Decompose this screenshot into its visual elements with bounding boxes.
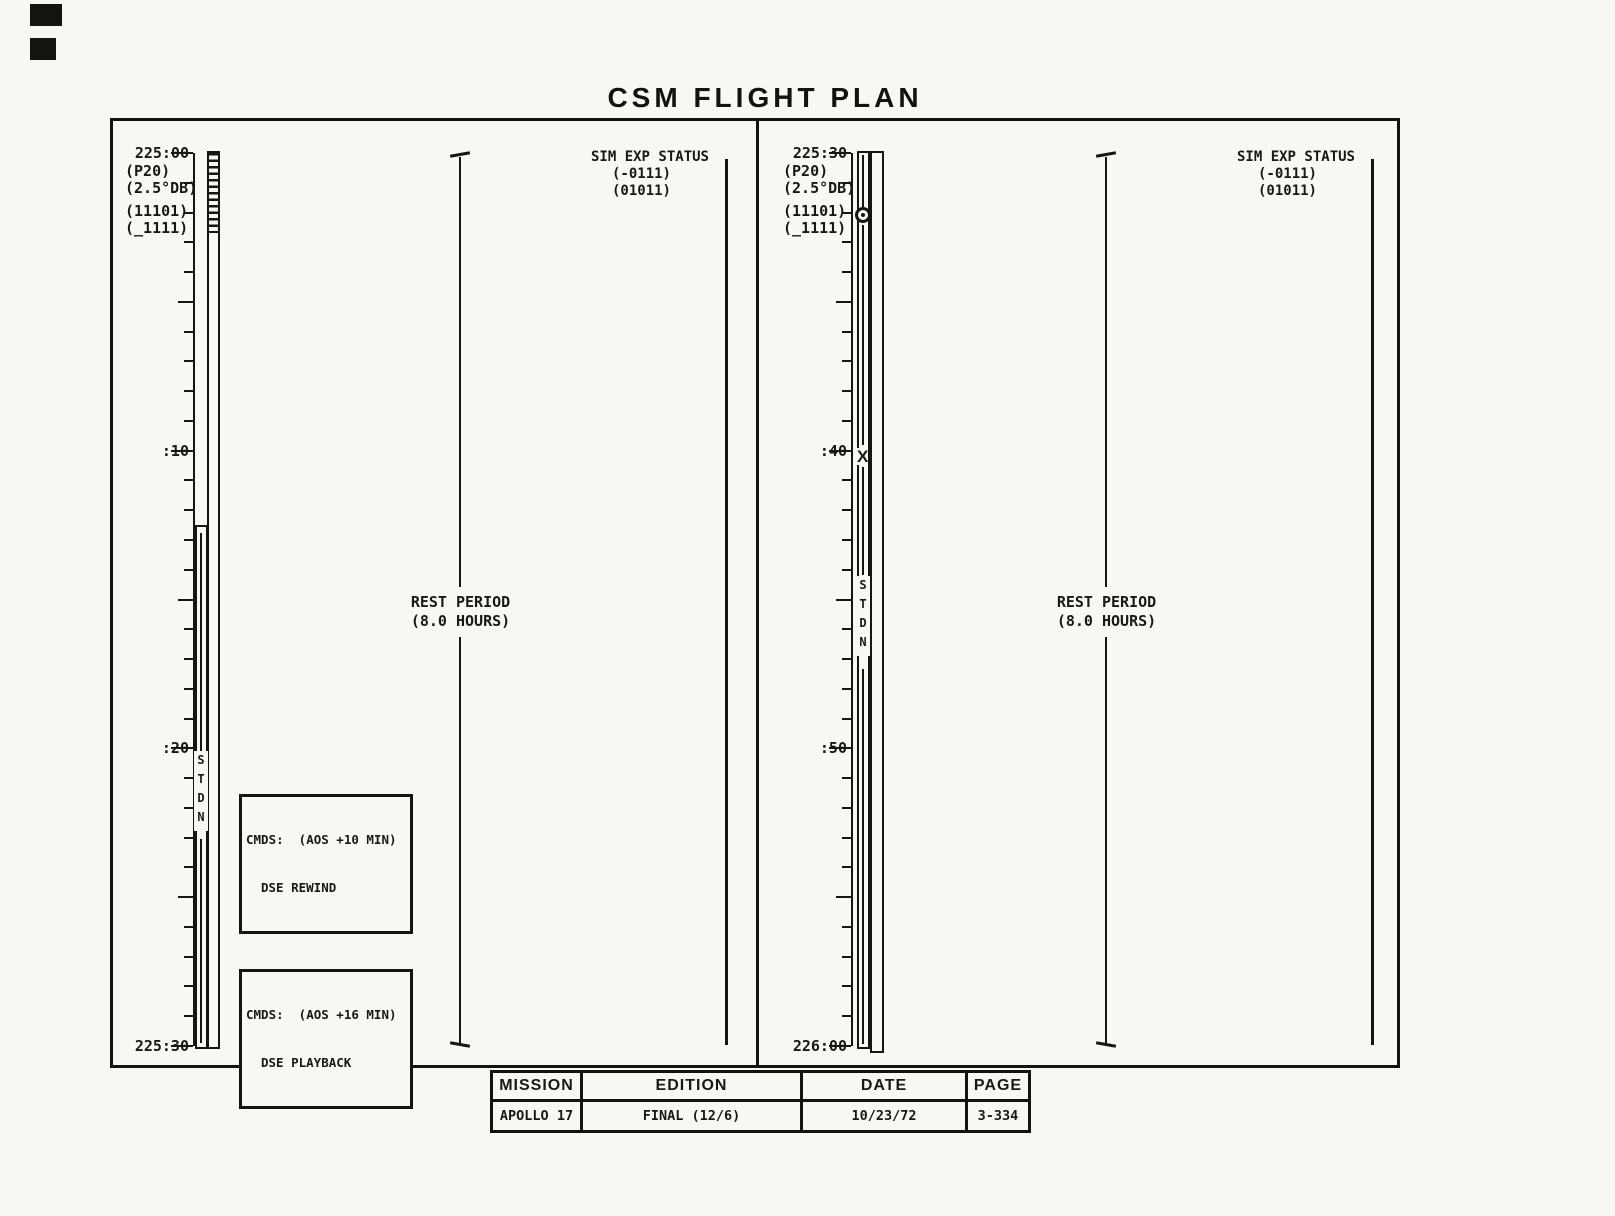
time-tick bbox=[184, 628, 193, 630]
time-tick bbox=[842, 985, 851, 987]
time-tick bbox=[842, 241, 851, 243]
rest-period-title: REST PERIOD bbox=[363, 593, 558, 612]
cmds-line: CMDS: (AOS +10 MIN) bbox=[246, 832, 406, 848]
mission-data-table: MISSION EDITION DATE PAGE APOLLO 17 FINA… bbox=[490, 1070, 1031, 1133]
value-mission: APOLLO 17 bbox=[492, 1101, 582, 1132]
time-tick bbox=[842, 926, 851, 928]
time-tick bbox=[184, 956, 193, 958]
annotation-block: (P20) (2.5°DB) (11101) (_1111) bbox=[783, 163, 855, 237]
scan-artifact bbox=[30, 38, 56, 60]
coverage-centerline bbox=[862, 225, 864, 445]
time-tick bbox=[184, 1015, 193, 1017]
scan-artifact bbox=[30, 4, 62, 26]
activity-bar bbox=[207, 151, 220, 1049]
time-tick bbox=[836, 599, 851, 601]
time-tick bbox=[184, 390, 193, 392]
sim-exp-status-value1: (-0111) bbox=[1174, 166, 1359, 183]
time-tick bbox=[184, 718, 193, 720]
annotation-deadband: (2.5°DB) bbox=[783, 180, 855, 197]
hatched-segment bbox=[209, 153, 218, 233]
cmds-line: CMDS: (AOS +16 MIN) bbox=[246, 1007, 406, 1023]
rest-period-label: REST PERIOD (8.0 HOURS) bbox=[1009, 587, 1204, 637]
time-label-mid2: :50 bbox=[771, 739, 847, 757]
sim-exp-status-value2: (01011) bbox=[1174, 183, 1359, 200]
circle-dot-marker bbox=[855, 207, 871, 223]
annotation-p20: (P20) bbox=[783, 163, 855, 180]
time-tick bbox=[184, 241, 193, 243]
time-tick bbox=[184, 539, 193, 541]
time-tick bbox=[836, 896, 851, 898]
time-tick bbox=[842, 956, 851, 958]
sim-exp-status-line bbox=[725, 159, 728, 1045]
time-tick bbox=[178, 896, 193, 898]
time-tick bbox=[842, 688, 851, 690]
flight-plan-box: 225:00 :10 :20 225:30 (P20) (2.5°DB) (11… bbox=[110, 118, 1400, 1068]
cmds-action: DSE REWIND bbox=[246, 880, 406, 896]
activity-bar bbox=[870, 151, 884, 1053]
sim-exp-status-block: SIM EXP STATUS (-0111) (01011) bbox=[1174, 149, 1359, 200]
cmds-action: DSE PLAYBACK bbox=[246, 1055, 406, 1071]
sim-exp-status-title: SIM EXP STATUS bbox=[1174, 149, 1359, 166]
time-tick bbox=[184, 658, 193, 660]
annotation-block: (P20) (2.5°DB) (11101) (_1111) bbox=[125, 163, 197, 237]
annotation-status-1: (11101) bbox=[783, 203, 855, 220]
time-label-start: 225:30 bbox=[771, 144, 847, 162]
time-tick bbox=[842, 360, 851, 362]
rest-period-duration: (8.0 HOURS) bbox=[363, 612, 558, 631]
annotation-status-2: (_1111) bbox=[125, 220, 197, 237]
time-tick bbox=[184, 837, 193, 839]
time-tick bbox=[842, 420, 851, 422]
rest-period-duration: (8.0 HOURS) bbox=[1009, 612, 1204, 631]
time-label-end: 225:30 bbox=[113, 1037, 189, 1055]
time-tick bbox=[842, 331, 851, 333]
header-edition: EDITION bbox=[582, 1072, 802, 1101]
time-tick bbox=[842, 777, 851, 779]
rest-period-label: REST PERIOD (8.0 HOURS) bbox=[363, 587, 558, 637]
timeline-panel-left: 225:00 :10 :20 225:30 (P20) (2.5°DB) (11… bbox=[113, 121, 756, 1065]
time-tick bbox=[842, 628, 851, 630]
time-tick bbox=[184, 271, 193, 273]
time-tick bbox=[178, 599, 193, 601]
value-date: 10/23/72 bbox=[802, 1101, 967, 1132]
time-tick bbox=[184, 569, 193, 571]
time-tick bbox=[184, 509, 193, 511]
time-tick bbox=[184, 777, 193, 779]
time-tick bbox=[184, 331, 193, 333]
coverage-centerline bbox=[200, 533, 202, 751]
value-page: 3-334 bbox=[967, 1101, 1030, 1132]
time-tick bbox=[842, 837, 851, 839]
value-edition: FINAL (12/6) bbox=[582, 1101, 802, 1132]
annotation-status-2: (_1111) bbox=[783, 220, 855, 237]
annotation-deadband: (2.5°DB) bbox=[125, 180, 197, 197]
sim-exp-status-value1: (-0111) bbox=[528, 166, 713, 183]
x-marker: X bbox=[857, 448, 868, 465]
time-tick bbox=[842, 539, 851, 541]
time-tick bbox=[842, 866, 851, 868]
time-tick bbox=[842, 658, 851, 660]
table-value-row: APOLLO 17 FINAL (12/6) 10/23/72 3-334 bbox=[492, 1101, 1030, 1132]
time-tick bbox=[184, 420, 193, 422]
timeline-panel-right: 225:30 :40 :50 226:00 (P20) (2.5°DB) (11… bbox=[759, 121, 1402, 1065]
coverage-centerline bbox=[862, 155, 864, 207]
time-tick bbox=[842, 569, 851, 571]
cmds-box-dse-playback: CMDS: (AOS +16 MIN) DSE PLAYBACK bbox=[239, 969, 413, 1109]
time-tick bbox=[836, 301, 851, 303]
table-header-row: MISSION EDITION DATE PAGE bbox=[492, 1072, 1030, 1101]
stdn-label: STDN bbox=[194, 751, 208, 831]
time-label-mid2: :20 bbox=[113, 739, 189, 757]
coverage-centerline bbox=[862, 467, 864, 575]
annotation-status-1: (11101) bbox=[125, 203, 197, 220]
time-tick bbox=[184, 866, 193, 868]
header-mission: MISSION bbox=[492, 1072, 582, 1101]
time-tick bbox=[184, 807, 193, 809]
time-tick bbox=[842, 271, 851, 273]
time-tick bbox=[184, 688, 193, 690]
time-tick bbox=[842, 807, 851, 809]
page-title: CSM FLIGHT PLAN bbox=[545, 82, 985, 114]
cmds-box-dse-rewind: CMDS: (AOS +10 MIN) DSE REWIND bbox=[239, 794, 413, 934]
time-tick bbox=[184, 479, 193, 481]
time-tick bbox=[184, 926, 193, 928]
time-tick bbox=[184, 985, 193, 987]
time-label-mid1: :10 bbox=[113, 442, 189, 460]
sim-exp-status-line bbox=[1371, 159, 1374, 1045]
time-tick bbox=[842, 509, 851, 511]
time-label-mid1: :40 bbox=[771, 442, 847, 460]
annotation-p20: (P20) bbox=[125, 163, 197, 180]
coverage-centerline bbox=[200, 839, 202, 1043]
sim-exp-status-title: SIM EXP STATUS bbox=[528, 149, 713, 166]
sim-exp-status-value2: (01011) bbox=[528, 183, 713, 200]
time-tick bbox=[178, 301, 193, 303]
time-tick bbox=[842, 718, 851, 720]
time-tick bbox=[842, 1015, 851, 1017]
stdn-label: STDN bbox=[856, 576, 870, 656]
time-tick bbox=[842, 479, 851, 481]
header-page: PAGE bbox=[967, 1072, 1030, 1101]
coverage-centerline bbox=[862, 669, 864, 1044]
header-date: DATE bbox=[802, 1072, 967, 1101]
sim-exp-status-block: SIM EXP STATUS (-0111) (01011) bbox=[528, 149, 713, 200]
time-tick bbox=[184, 360, 193, 362]
rest-period-title: REST PERIOD bbox=[1009, 593, 1204, 612]
time-label-start: 225:00 bbox=[113, 144, 189, 162]
time-label-end: 226:00 bbox=[771, 1037, 847, 1055]
time-tick bbox=[842, 390, 851, 392]
